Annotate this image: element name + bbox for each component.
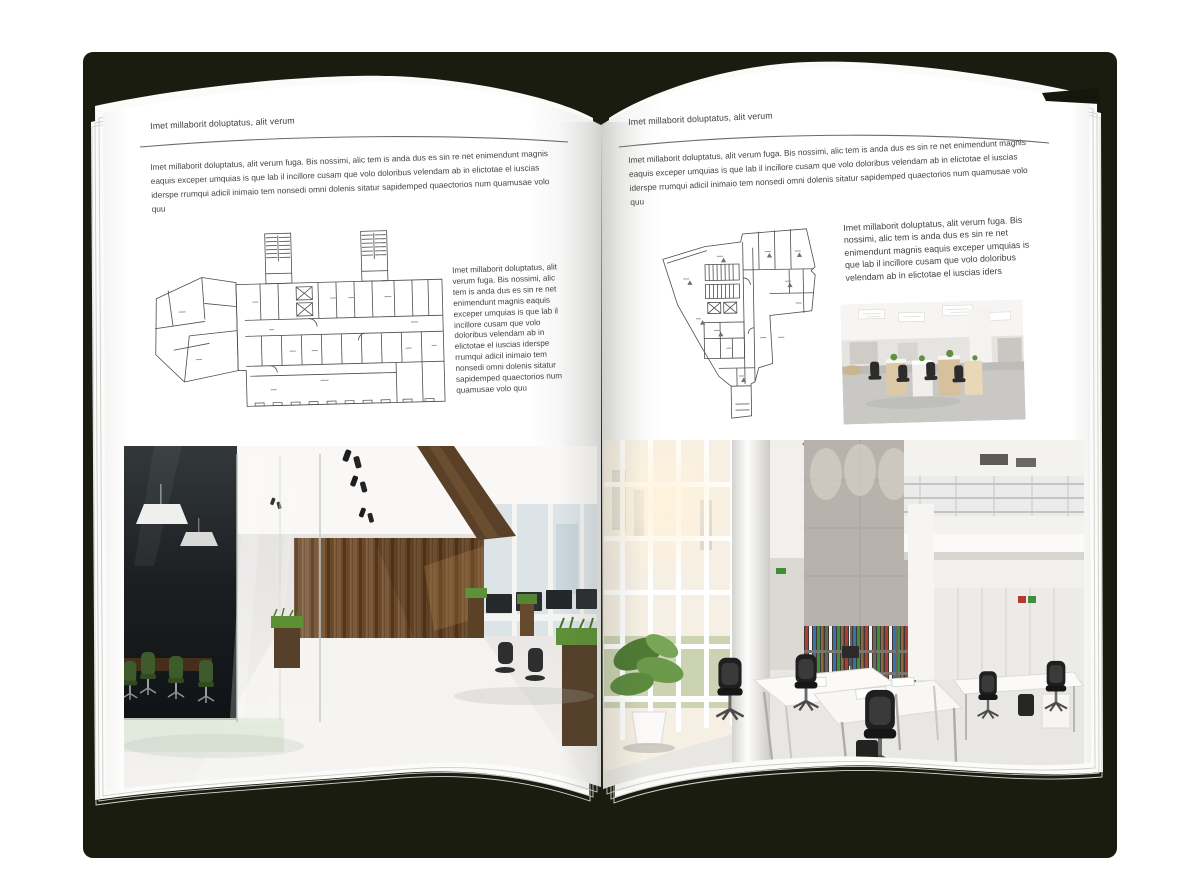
spine-shadow-right [601, 122, 643, 790]
spine-shadow-left [559, 122, 601, 790]
left-page [103, 83, 601, 791]
right-page [601, 69, 1091, 789]
